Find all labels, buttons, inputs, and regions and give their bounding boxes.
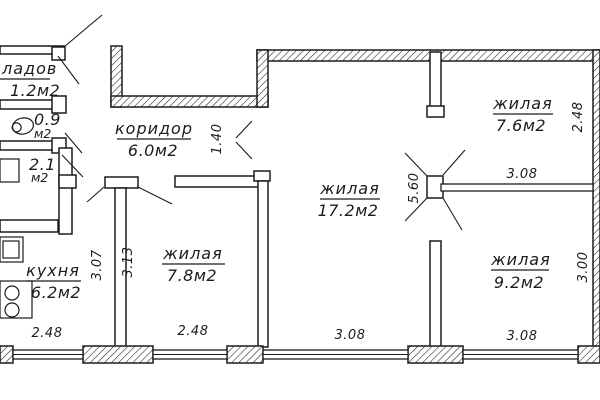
leader-line: [58, 56, 79, 84]
leader-line: [64, 15, 102, 47]
dim-corridor-opening: 1.40: [210, 124, 225, 155]
pier: [578, 346, 600, 363]
wall-partition-ne-se: [441, 184, 593, 191]
storage-area: 1.2м2: [10, 81, 60, 100]
window-living-se: [463, 350, 578, 359]
bathtub-icon: [0, 159, 19, 182]
window-living-main: [263, 350, 408, 359]
door-swing: [138, 187, 172, 204]
dim-living-main-width: 3.08: [335, 328, 366, 343]
room-labels: ладов 1.2м2 0.9 м2 2.1 м2 коридор 6.0м2 …: [0, 59, 553, 302]
wall-entry-right: [257, 50, 268, 107]
dim-living-se-depth: 3.00: [576, 252, 591, 283]
living-main-label: жилая: [319, 179, 379, 198]
living-se-area: 9.2м2: [494, 273, 544, 292]
wall-kitchen-lintel: [105, 177, 138, 188]
door-swing: [443, 198, 462, 230]
interior-walls: [0, 46, 593, 348]
living-ne-label: жилая: [492, 94, 552, 113]
floor-plan: ладов 1.2м2 0.9 м2 2.1 м2 коридор 6.0м2 …: [0, 0, 600, 400]
wall-bath-kitchen: [0, 220, 58, 232]
window-kitchen: [13, 350, 83, 359]
dim-living-ne-width: 3.08: [507, 167, 538, 182]
wall-bath-right: [59, 148, 72, 234]
wall-main-ne-cap: [427, 106, 444, 117]
corridor-label: коридор: [115, 119, 193, 138]
dim-living-ne-depth: 2.48: [571, 102, 586, 133]
pier: [83, 346, 153, 363]
bottom-wall: [0, 346, 600, 363]
door-swing: [236, 121, 252, 138]
pier: [0, 346, 13, 363]
storage-label: ладов: [1, 59, 57, 78]
door-swing: [443, 150, 465, 175]
dim-living-se-width: 3.08: [507, 329, 538, 344]
floor-plan-drawing: ладов 1.2м2 0.9 м2 2.1 м2 коридор 6.0м2 …: [0, 0, 600, 400]
stove-icon: [0, 281, 32, 318]
kitchen-area: 6.2м2: [31, 283, 81, 302]
dim-kitchen-depth: 3.07: [90, 249, 105, 280]
wall-right: [593, 50, 600, 347]
wall-entry-bottom: [111, 96, 268, 107]
living-sw-area: 7.8м2: [167, 266, 217, 285]
living-ne-area: 7.6м2: [496, 116, 546, 135]
toilet-icon: [11, 116, 35, 136]
door-swing: [87, 187, 104, 202]
living-main-area: 17.2м2: [318, 201, 379, 220]
wall-sw-main: [258, 181, 268, 347]
pier: [227, 346, 263, 363]
wall-sw-main-cap: [254, 171, 270, 181]
wall-main-se-lower: [430, 241, 441, 347]
window-living-sw: [153, 350, 227, 359]
corridor-area: 6.0м2: [128, 141, 178, 160]
pier: [408, 346, 463, 363]
sink-icon: [0, 237, 23, 262]
dim-kitchen-width: 2.48: [32, 326, 63, 341]
dim-living-sw-width: 2.48: [178, 324, 209, 339]
wall-top: [257, 50, 600, 61]
dim-living-main-depth: 5.60: [407, 173, 422, 204]
door-swing: [236, 142, 252, 159]
toilet-unit: м2: [34, 126, 51, 141]
bath-unit: м2: [31, 170, 48, 185]
living-sw-label: жилая: [162, 244, 222, 263]
wall-bath-door-cap: [59, 175, 76, 188]
dim-living-sw-depth: 3.13: [121, 247, 136, 278]
wall-main-ne-upper: [430, 52, 441, 108]
wall-sw-top: [175, 176, 260, 187]
living-se-label: жилая: [490, 250, 550, 269]
kitchen-label: кухня: [26, 261, 80, 280]
